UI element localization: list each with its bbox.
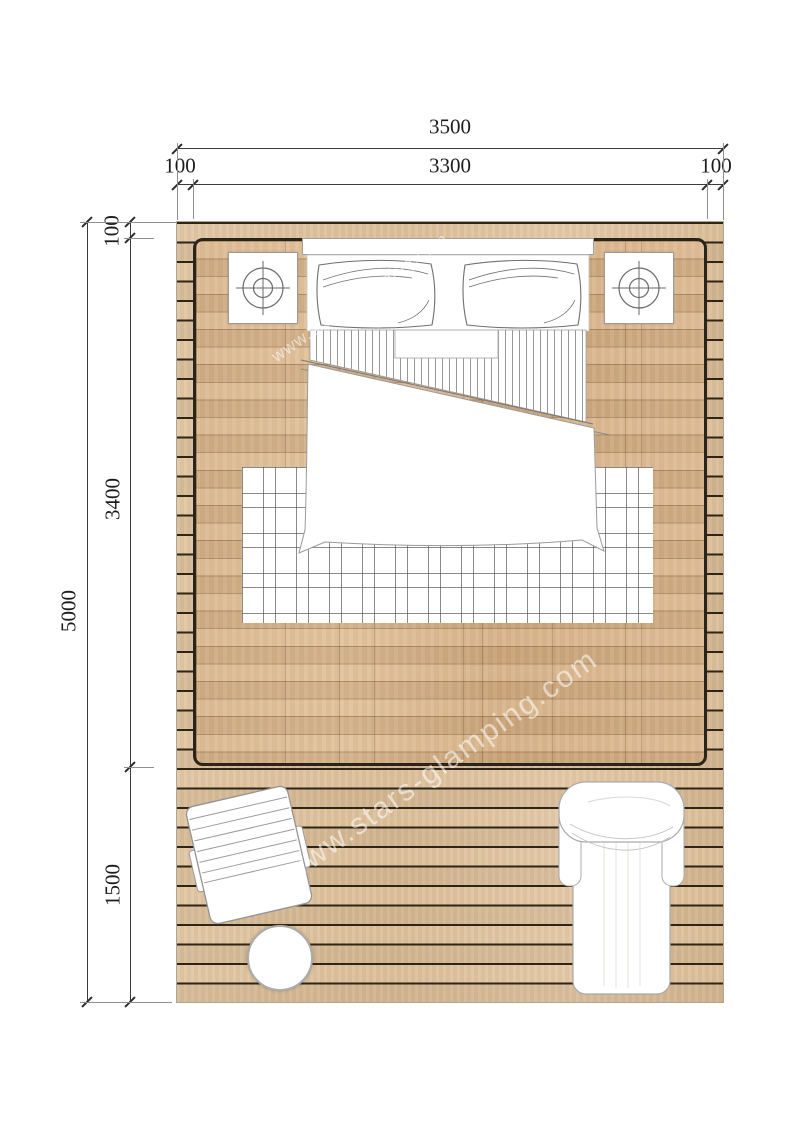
pillow-right	[463, 260, 581, 328]
floorplan-canvas: 3500 100 3300 100 5000 100 3400 1500	[0, 0, 800, 1131]
deck-base	[177, 222, 723, 1002]
witness-line	[193, 179, 194, 219]
witness-line	[177, 143, 178, 220]
lounger-back	[559, 782, 684, 842]
pillow-left	[317, 260, 435, 328]
outdoor-lounger	[558, 780, 685, 997]
lounger-body	[573, 826, 670, 994]
nightstand-left	[228, 252, 298, 324]
dim-line-top-total	[177, 148, 723, 149]
dim-top-seg3-label: 100	[700, 156, 732, 177]
blanket-notch	[395, 330, 498, 358]
dim-left-total-label: 5000	[59, 590, 80, 632]
witness-line	[723, 143, 724, 220]
deck-lounge-chair	[179, 783, 319, 928]
dim-line-left-total	[87, 222, 88, 1002]
dim-left-seg1-label: 100	[102, 215, 123, 247]
lamp-symbol	[229, 253, 297, 323]
lamp-symbol	[605, 253, 673, 323]
dim-line-left-segments	[130, 222, 131, 1002]
dim-top-total-label: 3500	[429, 117, 471, 138]
witness-line	[124, 238, 154, 239]
dim-top-seg1-label: 100	[164, 156, 196, 177]
nightstand-right	[604, 252, 674, 324]
dim-left-seg3-label: 1500	[103, 864, 124, 906]
double-bed	[302, 238, 598, 568]
bed-headboard	[303, 239, 594, 255]
dim-left-seg2-label: 3400	[103, 478, 124, 520]
dim-line-top-segments	[177, 184, 723, 185]
witness-line	[707, 179, 708, 219]
round-side-table	[247, 925, 313, 991]
dim-top-seg2-label: 3300	[429, 156, 471, 177]
witness-line	[80, 222, 176, 223]
witness-line	[80, 1002, 172, 1003]
witness-line	[124, 767, 154, 768]
